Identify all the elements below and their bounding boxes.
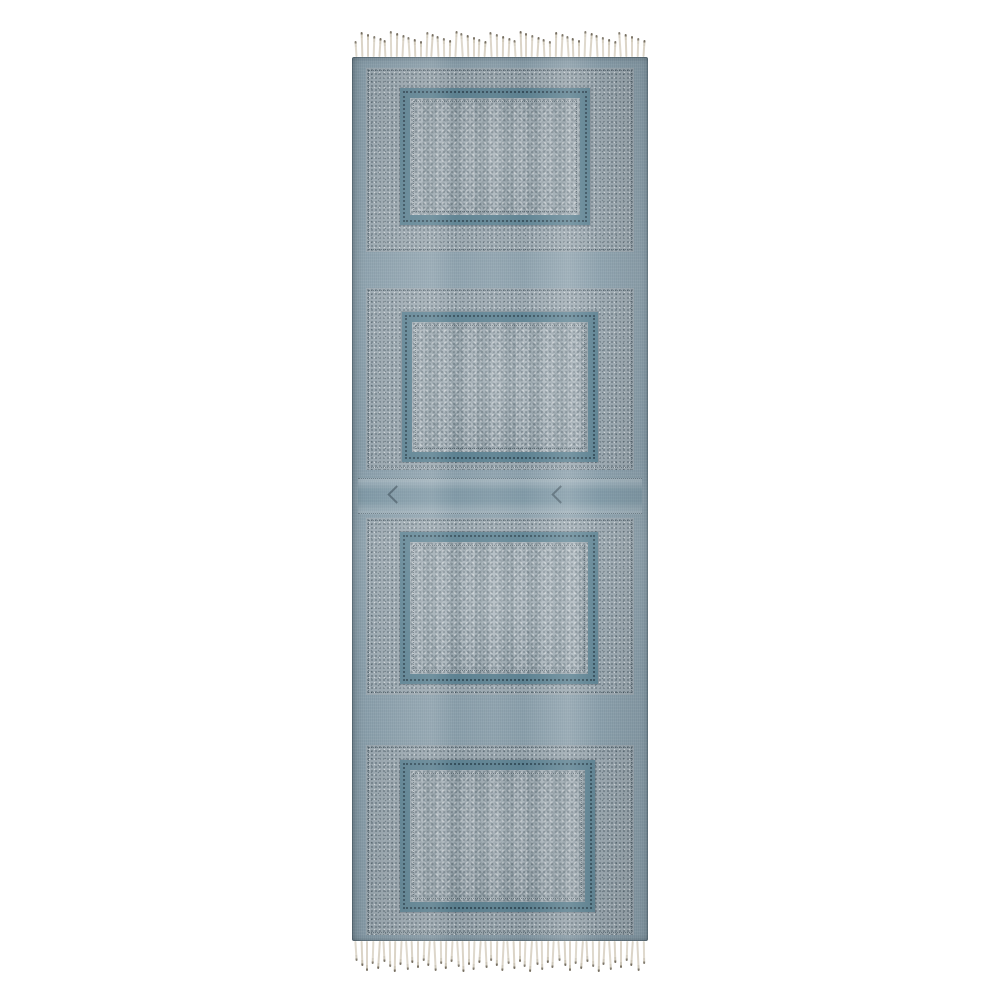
- fringe-tassel: [396, 33, 398, 57]
- fringe-tassel: [484, 41, 487, 57]
- fringe-tassel: [378, 38, 381, 57]
- fringe-tassel: [390, 31, 392, 57]
- fringe-tassel: [496, 34, 498, 57]
- fringe-tassel: [642, 40, 645, 57]
- fringe-tassel: [443, 38, 445, 57]
- panel-frame-4: [400, 760, 595, 912]
- fringe-tassel: [642, 941, 644, 964]
- fringe-tassel: [417, 941, 419, 968]
- fringe-tassel: [468, 941, 470, 965]
- fringe-tassel: [360, 32, 363, 57]
- runner-rug: [352, 30, 648, 975]
- fringe-tassel: [584, 31, 587, 57]
- fringe-tassel: [445, 941, 447, 969]
- fringe-tassel: [439, 941, 441, 964]
- fringe-tassel: [384, 40, 387, 57]
- fringe-tassel: [354, 941, 357, 961]
- fringe-tassel: [580, 941, 584, 969]
- fringe-tassel: [563, 941, 566, 966]
- fringe-tassel: [637, 38, 640, 57]
- fringe-tassel: [512, 941, 515, 969]
- fringe-tassel: [529, 941, 533, 972]
- panel-block-3: [366, 518, 634, 695]
- fringe-tassel: [507, 941, 510, 964]
- fringe-tassel: [592, 941, 594, 967]
- panel-field-2: [412, 322, 588, 452]
- fringe-tassel: [473, 37, 475, 57]
- fringe-tassel: [619, 32, 623, 57]
- fringe-bottom: [352, 941, 648, 975]
- fringe-tassel: [433, 941, 436, 971]
- panel-frame-2: [402, 312, 598, 462]
- fringe-tassel: [625, 941, 628, 961]
- fringe-tassel: [360, 941, 363, 966]
- fringe-tassel: [519, 31, 522, 57]
- fringe-tassel: [560, 34, 563, 57]
- panel-field-1: [410, 98, 580, 215]
- photo-canvas: [0, 0, 1000, 1000]
- fringe-tassel: [536, 37, 539, 57]
- fringe-tassel: [543, 39, 546, 57]
- fringe-tassel: [566, 36, 569, 57]
- fringe-tassel: [454, 31, 457, 57]
- fringe-tassel: [602, 37, 604, 57]
- fringe-tassel: [636, 941, 639, 971]
- fringe-tassel: [367, 34, 369, 57]
- fringe-tassel: [437, 36, 440, 57]
- fringe-tassel: [450, 941, 453, 962]
- fringe-tassel: [490, 941, 492, 961]
- panel-field-4: [410, 770, 585, 902]
- fringe-tassel: [394, 941, 396, 972]
- fringe-tassel: [449, 40, 451, 57]
- panel-frame-1: [400, 88, 590, 225]
- fringe-tassel: [413, 39, 416, 57]
- fringe-tassel: [589, 33, 593, 57]
- fringe-tassel: [389, 941, 391, 967]
- fringe-tassel: [519, 941, 521, 962]
- fringe-tassel: [525, 33, 527, 57]
- fringe-tassel: [603, 941, 606, 965]
- fringe-tassel: [401, 35, 404, 57]
- fringe-tassel: [557, 941, 560, 961]
- fringe-tassel: [607, 39, 609, 57]
- fringe-tassel: [496, 941, 498, 966]
- fringe-tassel: [407, 37, 410, 57]
- fringe-tassel: [507, 38, 510, 57]
- fringe-tassel: [625, 34, 628, 57]
- panel-block-1: [366, 68, 634, 252]
- fringe-tassel: [595, 35, 598, 57]
- fringe-tassel: [478, 941, 481, 963]
- fringe-tassel: [372, 941, 375, 964]
- fringe-tassel: [613, 41, 616, 57]
- fringe-tassel: [513, 40, 516, 57]
- fringe-tassel: [501, 941, 504, 971]
- fringe-tassel: [586, 941, 589, 962]
- fringe-tassel: [473, 941, 476, 970]
- fringe-tassel: [405, 941, 409, 970]
- fringe-tassel: [524, 941, 527, 967]
- fringe-tassel: [531, 35, 534, 57]
- fringe-tassel: [425, 32, 428, 57]
- fringe-tassel: [549, 41, 551, 57]
- fringe-tassel: [608, 941, 612, 970]
- fringe-tassel: [572, 38, 575, 57]
- fringe-tassel: [478, 39, 481, 57]
- fringe-tassel: [614, 941, 617, 963]
- fringe-tassel: [541, 941, 543, 970]
- fringe-tassel: [422, 941, 425, 961]
- fringe-tassel: [428, 941, 432, 966]
- fringe-tassel: [411, 941, 414, 963]
- fringe-tassel: [466, 35, 469, 57]
- rug-body: [352, 57, 648, 941]
- fringe-tassel: [535, 941, 538, 965]
- fringe-tassel: [578, 40, 580, 57]
- fringe-tassel: [484, 941, 487, 968]
- panel-frame-3: [400, 532, 598, 684]
- fringe-tassel: [631, 36, 633, 57]
- fringe-tassel: [431, 34, 434, 57]
- fringe-tassel: [456, 941, 460, 967]
- fringe-tassel: [460, 33, 464, 57]
- fringe-top: [352, 30, 648, 57]
- mid-weave-divider: [358, 478, 642, 514]
- fringe-tassel: [372, 36, 375, 57]
- fringe-tassel: [383, 941, 386, 962]
- fringe-tassel: [555, 32, 557, 57]
- fringe-tassel: [354, 41, 357, 57]
- fringe-tassel: [400, 941, 403, 965]
- panel-field-3: [410, 542, 588, 674]
- fringe-tassel: [631, 941, 635, 966]
- fringe-tassel: [620, 941, 622, 968]
- fringe-tassel: [597, 941, 599, 972]
- panel-block-2: [366, 288, 634, 470]
- fringe-tassel: [502, 36, 504, 57]
- fringe-tassel: [575, 941, 578, 964]
- fringe-tassel: [462, 941, 465, 972]
- fringe-tassel: [547, 941, 549, 963]
- fringe-tassel: [420, 41, 422, 57]
- fringe-tassel: [366, 941, 368, 971]
- fringe-tassel: [377, 941, 381, 969]
- fringe-tassel: [490, 32, 493, 57]
- fringe-tassel: [569, 941, 571, 971]
- fringe-tassel: [552, 941, 555, 968]
- panel-block-4: [366, 745, 634, 935]
